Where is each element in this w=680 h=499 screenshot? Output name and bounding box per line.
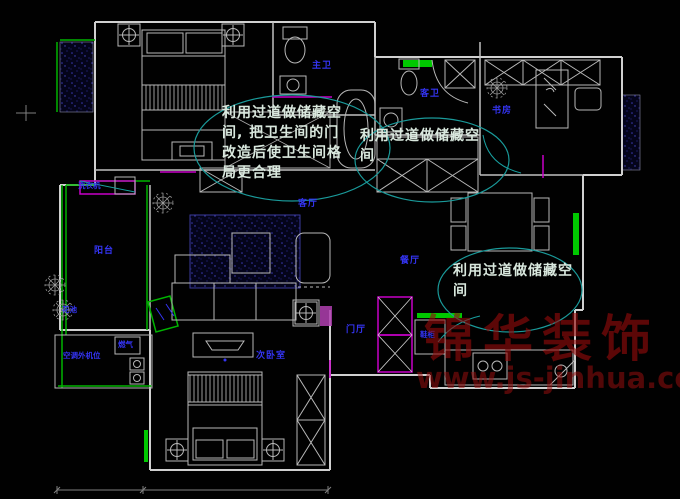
cad-canvas: 主卫 客卫 书房 客厅 餐厅 阳台 门厅 次卧室 鞋柜 花池 空调外机位 洗衣机…	[0, 0, 680, 499]
label-ac-platform: 空调外机位	[63, 352, 101, 360]
note1-line1: 利用过道做储藏空	[222, 103, 342, 123]
watermark-url-text: www.js-jinhua.com	[416, 364, 680, 393]
note1-line2: 间, 把卫生间的门	[222, 123, 342, 143]
room-label-master-bath: 主卫	[312, 62, 332, 71]
note2-line2: 间	[360, 146, 480, 166]
room-label-dining-room: 餐厅	[400, 257, 420, 266]
label-washing-machine: 洗衣机	[78, 182, 101, 190]
room-label-guest-bath: 客卫	[420, 90, 440, 99]
room-label-study: 书房	[492, 107, 512, 116]
note2-line1: 利用过道做储藏空	[360, 126, 480, 146]
note3-line2: 间	[453, 281, 573, 301]
label-gas-meter: 燃气	[118, 341, 133, 349]
room-label-living-room: 客厅	[298, 200, 318, 209]
second-bedroom	[166, 333, 325, 465]
watermark-brand-text: 锦华装饰	[424, 314, 680, 364]
note1-line4: 局更合理	[222, 163, 342, 183]
dining-set	[451, 193, 549, 251]
room-label-balcony: 阳台	[94, 247, 114, 256]
note3-line1: 利用过道做储藏空	[453, 261, 573, 281]
annotation-note-2: 利用过道做储藏空 间	[360, 126, 480, 166]
annotation-note-3: 利用过道做储藏空 间	[453, 261, 573, 301]
living-room	[153, 193, 330, 326]
label-flower-bed: 花池	[62, 306, 77, 314]
annotation-note-1: 利用过道做储藏空 间, 把卫生间的门 改造后使卫生间格 局更合理	[222, 103, 342, 183]
note1-line3: 改造后使卫生间格	[222, 143, 342, 163]
room-label-second-bedroom: 次卧室	[256, 352, 286, 361]
room-label-entry-hall: 门厅	[346, 326, 366, 335]
study	[483, 60, 601, 173]
